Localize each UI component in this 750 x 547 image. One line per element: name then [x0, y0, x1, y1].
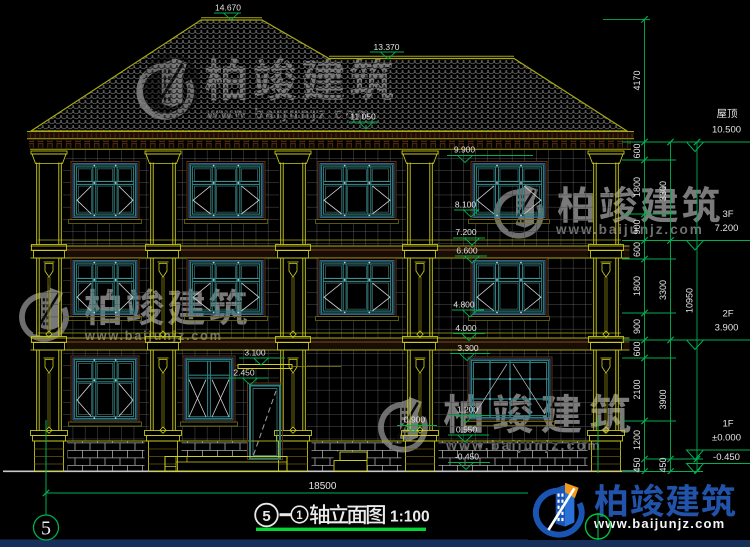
svg-text:14.670: 14.670 [215, 3, 241, 13]
svg-text:900: 900 [632, 219, 642, 234]
svg-text:0.900: 0.900 [404, 415, 426, 425]
svg-text:2F: 2F [722, 309, 733, 320]
svg-text:600: 600 [632, 242, 642, 257]
svg-text:3.100: 3.100 [244, 348, 266, 358]
svg-text:5: 5 [41, 518, 51, 540]
svg-text:3900: 3900 [658, 389, 668, 409]
svg-text:6.600: 6.600 [456, 246, 478, 256]
svg-text:13.370: 13.370 [374, 42, 400, 52]
svg-text:www.baijunjz.com: www.baijunjz.com [593, 516, 725, 531]
svg-text:3300: 3300 [658, 181, 668, 201]
svg-text:900: 900 [632, 319, 642, 334]
svg-text:600: 600 [632, 341, 642, 356]
svg-text:450: 450 [632, 457, 642, 472]
svg-text:1:100: 1:100 [390, 509, 430, 526]
svg-text:1F: 1F [722, 419, 733, 430]
svg-text:4170: 4170 [632, 70, 642, 90]
svg-text:-0.450: -0.450 [713, 452, 740, 463]
svg-text:4.800: 4.800 [453, 300, 475, 310]
svg-text:3300: 3300 [658, 280, 668, 300]
svg-text:5: 5 [262, 508, 270, 525]
svg-text:1.200: 1.200 [457, 405, 479, 415]
svg-text:10950: 10950 [685, 288, 695, 313]
svg-text:9.900: 9.900 [454, 145, 476, 155]
svg-text:450: 450 [658, 457, 668, 472]
svg-text:2.450: 2.450 [233, 368, 255, 378]
svg-text:0.550: 0.550 [456, 425, 478, 435]
svg-text:1200: 1200 [632, 430, 642, 450]
svg-text:4.000: 4.000 [455, 323, 477, 333]
svg-text:-0.450: -0.450 [455, 452, 479, 462]
svg-text:±0.000: ±0.000 [712, 433, 741, 444]
svg-text:3F: 3F [722, 209, 733, 220]
svg-text:18500: 18500 [309, 481, 337, 492]
svg-text:3.900: 3.900 [715, 323, 739, 334]
svg-text:10.500: 10.500 [712, 125, 741, 136]
svg-text:600: 600 [632, 143, 642, 158]
svg-text:1800: 1800 [632, 177, 642, 197]
svg-text:1: 1 [296, 510, 303, 522]
svg-text:1800: 1800 [632, 276, 642, 296]
svg-text:2100: 2100 [632, 379, 642, 399]
svg-text:11.050: 11.050 [350, 112, 376, 122]
svg-text:7.200: 7.200 [455, 227, 477, 237]
svg-text:8.100: 8.100 [455, 200, 477, 210]
svg-text:3.300: 3.300 [457, 343, 479, 353]
svg-text:7.200: 7.200 [715, 223, 739, 234]
